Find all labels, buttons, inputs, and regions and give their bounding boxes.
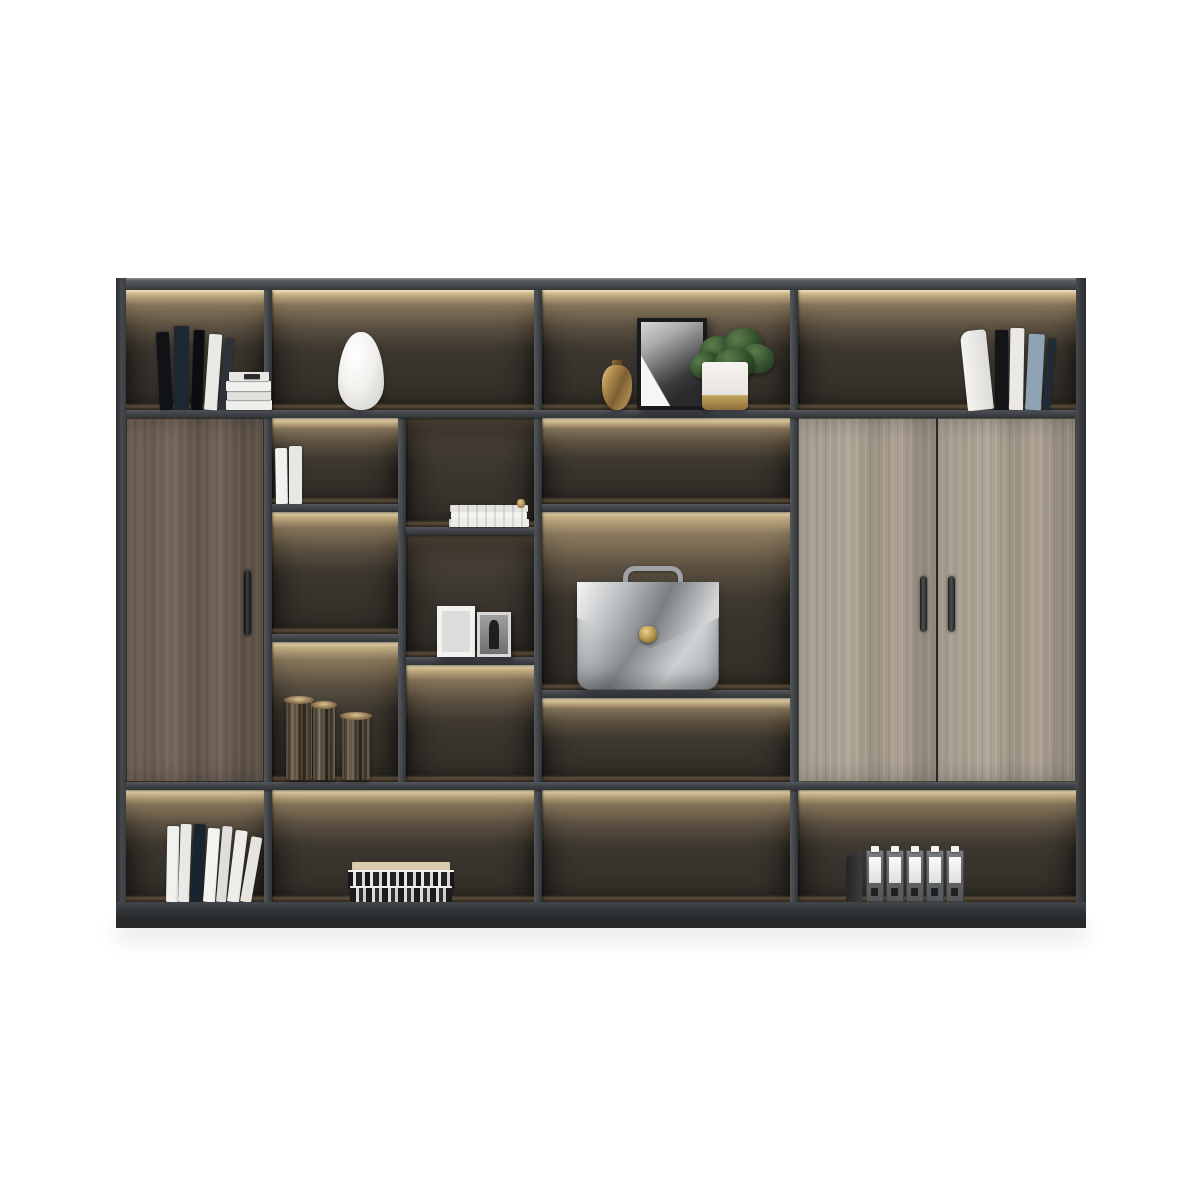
bookend <box>846 850 862 902</box>
book-spine <box>191 330 205 410</box>
briefcase-clasp <box>639 626 657 643</box>
compartment-top-2 <box>272 290 534 410</box>
divider-sub <box>398 418 406 782</box>
shelf-b2 <box>406 657 534 665</box>
shelf-b1 <box>406 527 534 535</box>
right-door-left-panel <box>798 418 937 782</box>
ring-binder <box>866 850 884 902</box>
books-top-right <box>968 326 1054 410</box>
stacked-book-cover <box>352 862 450 870</box>
white-paperbacks <box>276 444 306 504</box>
product-photo-canvas <box>0 0 1200 1200</box>
shelf-top <box>126 410 1076 418</box>
book-stack-bottom <box>346 862 458 902</box>
divider-2 <box>534 290 542 902</box>
shelf-a1 <box>272 504 398 512</box>
binder-tab <box>951 846 959 852</box>
stacked-book <box>226 400 272 410</box>
compartment-center-1 <box>542 418 790 504</box>
book-spine <box>289 446 302 504</box>
shelf-c2 <box>542 690 790 698</box>
cabinet-right-panel <box>1076 278 1086 928</box>
cabinet-top-panel <box>116 278 1086 290</box>
right-wood-doors <box>798 418 1076 782</box>
right-door-handle-right <box>948 576 955 632</box>
magazine-stack <box>449 503 529 527</box>
door-seam <box>936 418 938 782</box>
photo-frames <box>437 606 529 658</box>
compartment-bottom-3 <box>542 790 790 902</box>
book-spine <box>166 826 179 902</box>
shelf-c1 <box>542 504 790 512</box>
candle-holder <box>313 705 335 780</box>
left-wood-door <box>126 418 264 782</box>
right-door-handle-left <box>920 576 927 632</box>
bookcase <box>116 278 1086 928</box>
binder-tab <box>891 846 899 852</box>
ring-binder <box>906 850 924 902</box>
bronze-jar <box>602 365 632 410</box>
right-door-right-panel <box>937 418 1076 782</box>
cabinet-base-upper <box>116 902 1086 916</box>
shelf-a2 <box>272 634 398 642</box>
compartment-center-3 <box>542 698 790 782</box>
book-spine <box>275 448 288 504</box>
divider-3 <box>790 290 798 902</box>
stacked-book <box>226 381 271 391</box>
binder-tab <box>871 846 879 852</box>
left-door-handle <box>244 570 251 636</box>
cabinet-left-panel <box>116 278 126 928</box>
ring-binder <box>946 850 964 902</box>
candle-holders <box>286 698 374 782</box>
ring-binder <box>926 850 944 902</box>
books-bottom-left <box>166 822 258 902</box>
photo-frame <box>437 606 475 657</box>
photo-frame <box>477 612 511 657</box>
ring-binder <box>886 850 904 902</box>
stacked-book-label <box>244 374 260 379</box>
binder-tab <box>911 846 919 852</box>
cabinet-base-plinth <box>116 916 1086 928</box>
book-spine <box>156 332 173 411</box>
book-spine <box>1009 328 1024 410</box>
compartment-mid-b3 <box>406 665 534 782</box>
compartment-mid-a2 <box>272 512 398 634</box>
book-spine <box>174 326 189 410</box>
briefcase <box>577 566 719 690</box>
gold-cap <box>517 499 525 508</box>
binder-row <box>846 848 982 902</box>
shelf-bottom <box>126 782 1076 790</box>
plant-pot <box>702 362 748 410</box>
candle-holder <box>342 716 370 780</box>
books-top-left <box>160 324 272 410</box>
binder-tab <box>931 846 939 852</box>
stacked-book <box>227 391 271 400</box>
book-spine <box>995 330 1008 410</box>
candle-holder <box>286 700 312 780</box>
